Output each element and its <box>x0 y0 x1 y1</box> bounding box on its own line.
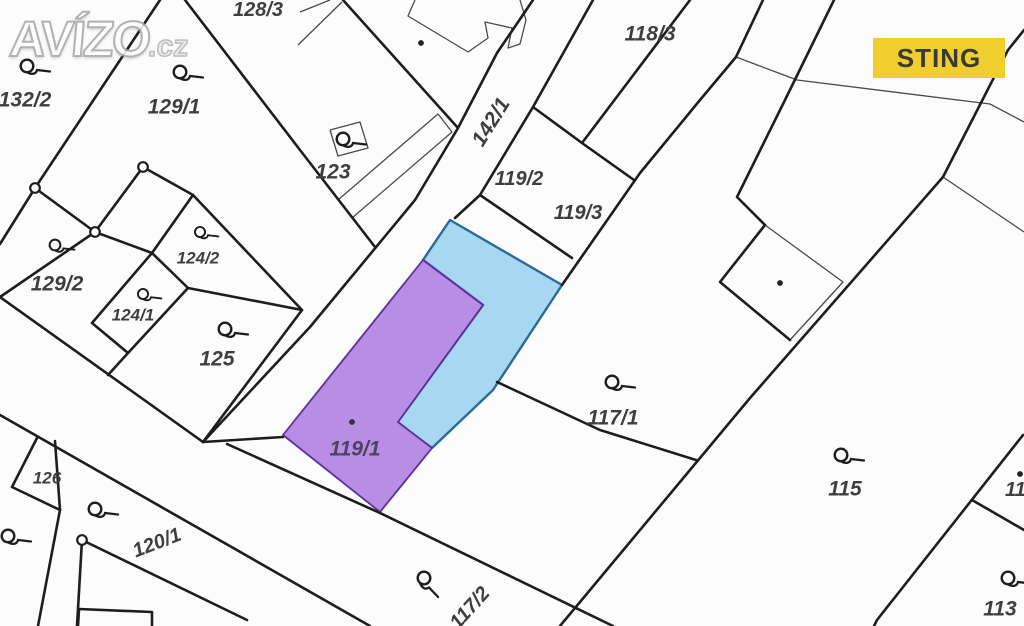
parcel-label-119-3: 119/3 <box>554 202 603 224</box>
parcel-label-118-3: 118/3 <box>625 23 676 46</box>
parcel-boundary-line <box>35 0 160 188</box>
cadastre-symbol-circle <box>415 569 433 587</box>
cadastre-symbol-circle <box>195 227 205 237</box>
building-dot <box>418 40 424 46</box>
cadastre-symbol-icon <box>1002 572 1024 586</box>
parcel-boundary-line <box>95 232 152 253</box>
parcel-boundary-line <box>152 195 193 253</box>
parcel-label-124-2: 124/2 <box>177 249 220 268</box>
parcel-label-117-2: 117/2 <box>446 583 495 626</box>
building-outline-line <box>408 0 526 52</box>
parcel-label-142-1: 142/1 <box>467 94 514 151</box>
cadastre-symbol-circle <box>21 60 34 73</box>
parcel-boundary-line <box>972 500 1024 530</box>
parcel-label-126: 126 <box>33 469 62 488</box>
building-outline-line <box>943 177 1024 232</box>
parcel-label-120-1: 120/1 <box>130 524 185 562</box>
cadastre-symbol-icon <box>50 240 75 252</box>
boundary-point-marker <box>90 227 100 237</box>
parcel-label-119-1: 119/1 <box>330 438 381 461</box>
building-outline-line <box>765 225 843 340</box>
cadastre-symbol-icon <box>174 66 203 80</box>
cadastre-symbol-icon <box>89 503 118 517</box>
cadastre-symbol-icon <box>835 449 864 463</box>
building-outline-line <box>298 2 342 45</box>
parcel-boundary-line <box>560 177 943 626</box>
cadastre-symbol-circle <box>337 133 350 146</box>
parcel-boundary-line <box>185 0 375 247</box>
parcel-boundary-line <box>193 195 302 442</box>
parcel-label-113: 113 <box>983 598 1017 621</box>
boundary-point-marker <box>30 183 40 193</box>
parcel-boundary-line <box>343 0 458 128</box>
cadastre-symbol-icon <box>337 133 366 147</box>
cadastre-symbol-circle <box>606 376 619 389</box>
sting-badge-label: STING <box>897 43 981 74</box>
cadastre-symbol-icon <box>2 530 31 544</box>
parcel-label-132-2: 132/2 <box>0 89 52 112</box>
parcel-label-117-1: 117/1 <box>588 407 639 430</box>
parcel-label-114: 114 <box>1005 479 1024 501</box>
building-outline-line <box>300 0 330 12</box>
parcel-label-119-2: 119/2 <box>495 168 544 190</box>
cadastre-symbol-circle <box>174 66 187 79</box>
cadastre-symbol-icon <box>414 569 446 599</box>
cadastre-symbol-icon <box>21 60 50 74</box>
parcel-boundary-line <box>582 0 690 143</box>
parcel-boundary-line <box>35 167 193 232</box>
parcel-boundary-line <box>203 437 283 442</box>
sting-badge: STING <box>873 38 1005 78</box>
parcel-boundary-line <box>92 253 188 353</box>
cadastre-symbol-circle <box>219 323 232 336</box>
cadastral-map-page: 132/2129/1128/3123142/1119/2119/3118/312… <box>0 0 1024 626</box>
parcel-boundary-line <box>227 444 613 626</box>
parcel-boundary-line <box>0 188 35 244</box>
parcel-boundary-line <box>737 0 834 225</box>
cadastral-map-canvas[interactable]: 132/2129/1128/3123142/1119/2119/3118/312… <box>0 0 1024 626</box>
cadastre-symbol-icon <box>219 323 248 337</box>
parcel-boundary-line <box>0 297 203 442</box>
building-dot <box>349 419 355 425</box>
boundary-point-marker <box>138 162 148 172</box>
cadastre-symbol-circle <box>50 240 61 251</box>
cadastre-symbol-circle <box>89 503 102 516</box>
parcel-boundary-line <box>78 609 152 626</box>
building-dot <box>1017 471 1023 477</box>
cadastre-symbol-circle <box>2 530 15 543</box>
boundary-point-marker <box>77 535 87 545</box>
parcel-label-125: 125 <box>199 348 234 371</box>
parcel-label-115: 115 <box>828 478 862 501</box>
parcel-boundary-line <box>82 540 247 620</box>
parcel-label-124-1: 124/1 <box>112 306 155 325</box>
cadastre-symbol-circle <box>138 289 148 299</box>
parcel-label-129-2: 129/2 <box>31 273 84 296</box>
parcel-label-129-1: 129/1 <box>148 96 201 119</box>
cadastre-symbol-icon <box>606 376 635 390</box>
cadastre-symbol-circle <box>835 449 848 462</box>
cadastre-symbol-icon <box>195 227 218 238</box>
parcel-label-128-3: 128/3 <box>233 0 283 21</box>
parcel-label-123: 123 <box>315 161 350 184</box>
parcel-boundary-line <box>533 107 634 180</box>
cadastre-symbol-icon <box>138 289 161 300</box>
cadastre-symbol-circle <box>1002 572 1015 585</box>
parcel-boundary-line <box>108 353 128 375</box>
building-dot <box>777 280 783 286</box>
